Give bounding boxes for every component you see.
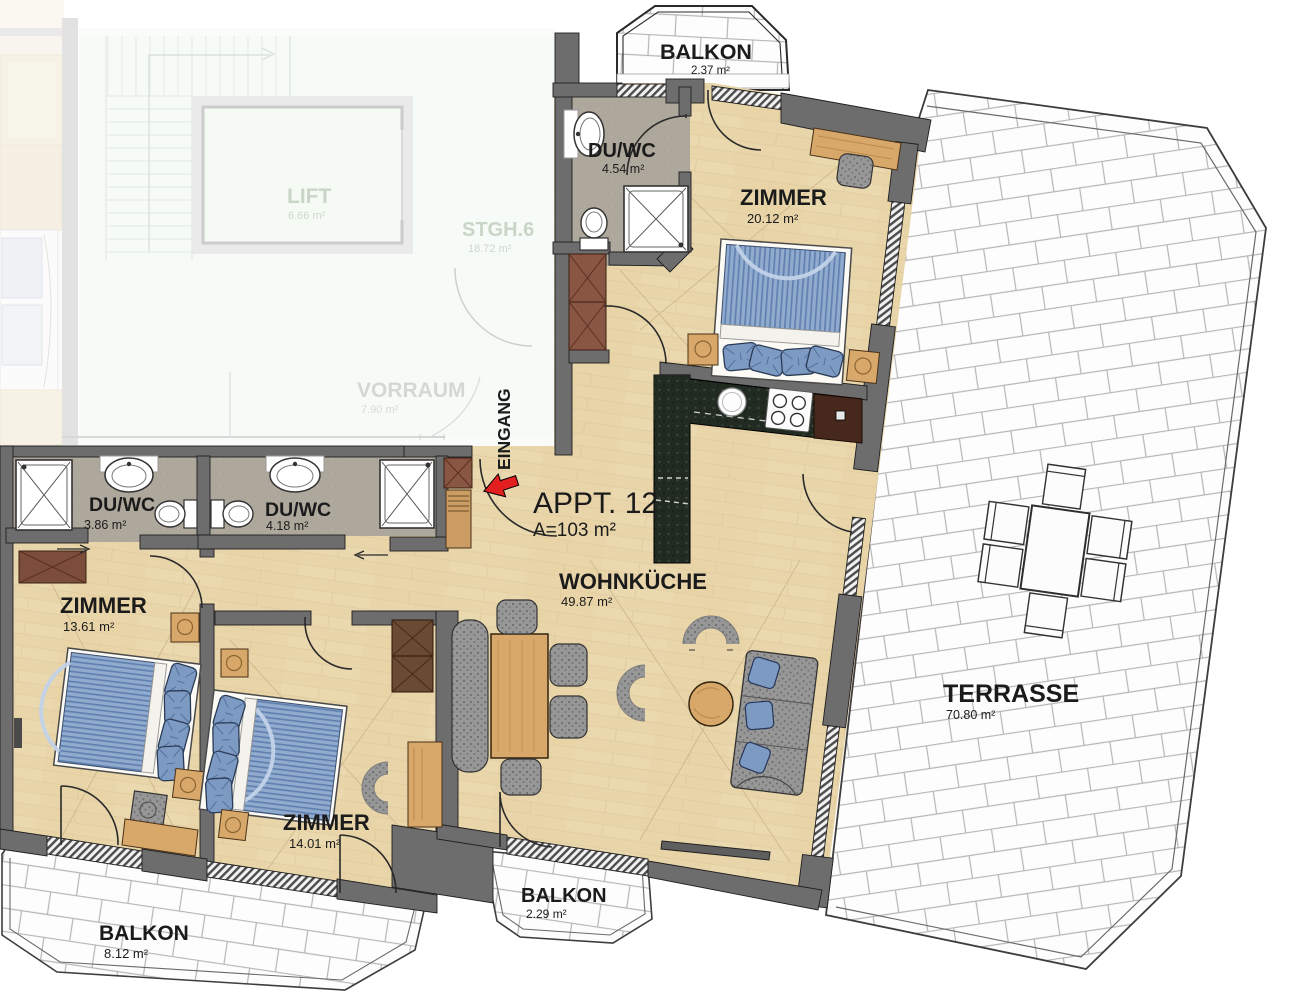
svg-text:18.72 m²: 18.72 m²	[468, 243, 512, 255]
svg-text:STGH.6: STGH.6	[462, 219, 534, 241]
svg-text:7.90 m²: 7.90 m²	[361, 404, 399, 416]
svg-text:LIFT: LIFT	[287, 185, 331, 208]
svg-text:VORRAUM: VORRAUM	[357, 379, 466, 402]
svg-text:70.80 m²: 70.80 m²	[946, 708, 995, 722]
svg-text:EINGANG: EINGANG	[494, 388, 514, 470]
svg-text:BALKON: BALKON	[99, 922, 189, 945]
svg-text:BALKON: BALKON	[521, 885, 607, 907]
svg-text:14.01 m²: 14.01 m²	[289, 836, 341, 851]
svg-text:TERRASSE: TERRASSE	[943, 680, 1079, 708]
svg-text:13.61 m²: 13.61 m²	[63, 619, 115, 634]
svg-text:DU/WC: DU/WC	[89, 494, 155, 516]
svg-text:2.37 m²: 2.37 m²	[691, 65, 730, 77]
svg-text:A=103 m²: A=103 m²	[533, 520, 616, 541]
svg-text:8.12 m²: 8.12 m²	[104, 946, 149, 961]
svg-text:DU/WC: DU/WC	[265, 499, 331, 521]
svg-text:ZIMMER: ZIMMER	[60, 593, 147, 618]
svg-text:6.66 m²: 6.66 m²	[288, 210, 326, 222]
svg-text:2.29 m²: 2.29 m²	[526, 907, 567, 921]
svg-text:APPT. 12: APPT. 12	[533, 487, 658, 520]
svg-text:49.87 m²: 49.87 m²	[561, 594, 613, 609]
svg-text:3.86 m²: 3.86 m²	[84, 518, 126, 532]
svg-text:DU/WC: DU/WC	[588, 140, 656, 162]
svg-text:WOHNKÜCHE: WOHNKÜCHE	[559, 569, 707, 594]
svg-text:ZIMMER: ZIMMER	[283, 810, 370, 835]
svg-text:20.12 m²: 20.12 m²	[747, 211, 799, 226]
svg-text:BALKON: BALKON	[660, 40, 752, 64]
svg-text:4.18 m²: 4.18 m²	[266, 519, 308, 533]
svg-text:4.54 m²: 4.54 m²	[602, 162, 644, 176]
svg-text:ZIMMER: ZIMMER	[740, 185, 827, 210]
